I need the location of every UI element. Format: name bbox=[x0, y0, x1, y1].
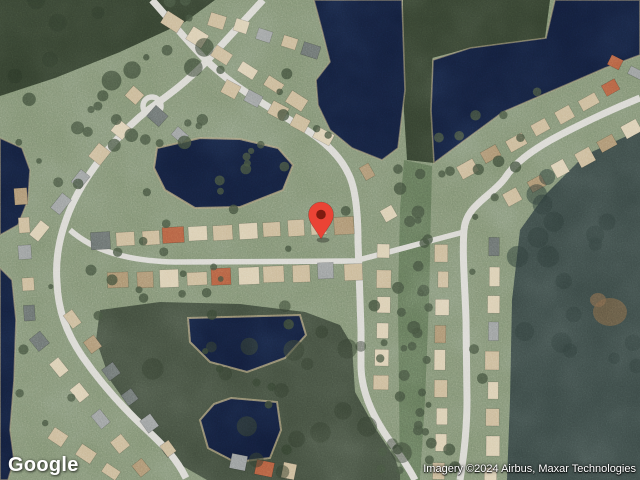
satellite-map-view[interactable]: Google Imagery ©2024 Airbus, Maxar Techn… bbox=[0, 0, 640, 480]
google-logo[interactable]: Google bbox=[8, 454, 79, 477]
marker-shadow bbox=[317, 237, 330, 242]
imagery-attribution: Imagery ©2024 Airbus, Maxar Technologies bbox=[423, 463, 636, 475]
marker-pin-dot bbox=[316, 210, 326, 220]
satellite-imagery[interactable] bbox=[0, 0, 640, 480]
